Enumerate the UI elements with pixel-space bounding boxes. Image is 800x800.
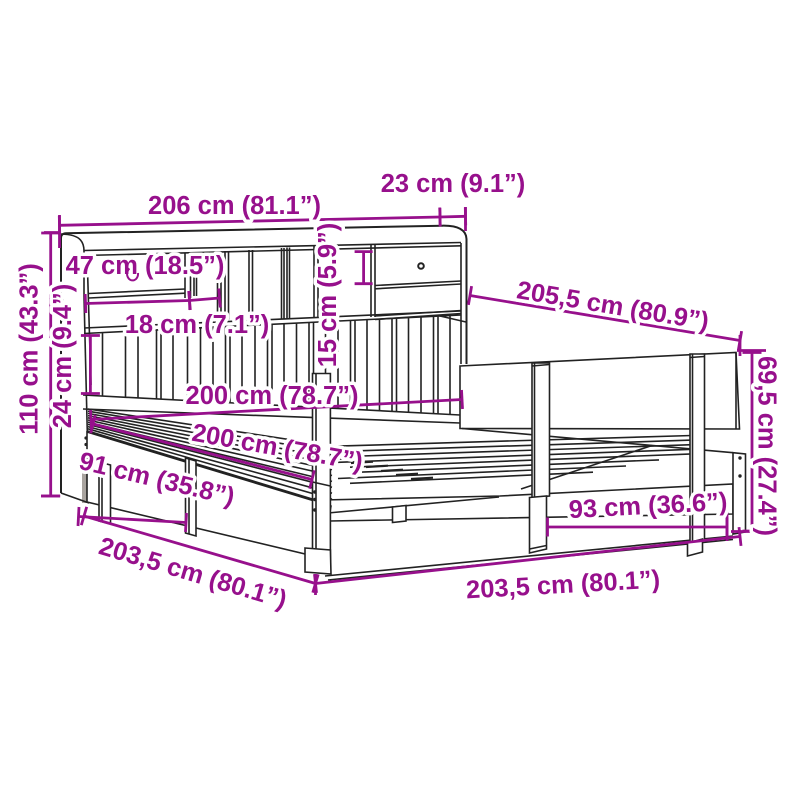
svg-text:110 cm (43.3”): 110 cm (43.3”) (16, 263, 44, 435)
svg-text:69,5 cm (27.4”): 69,5 cm (27.4”) (753, 356, 781, 536)
svg-text:206 cm (81.1”): 206 cm (81.1”) (148, 192, 321, 220)
svg-text:47 cm (18.5”): 47 cm (18.5”) (66, 252, 225, 280)
svg-text:200 cm (78.7”): 200 cm (78.7”) (186, 382, 359, 410)
svg-text:18 cm (7.1”): 18 cm (7.1”) (125, 311, 270, 339)
svg-text:23 cm (9.1”): 23 cm (9.1”) (381, 170, 526, 198)
svg-text:24 cm (9.4”): 24 cm (9.4”) (49, 284, 77, 429)
svg-text:15 cm (5.9”): 15 cm (5.9”) (314, 223, 342, 368)
